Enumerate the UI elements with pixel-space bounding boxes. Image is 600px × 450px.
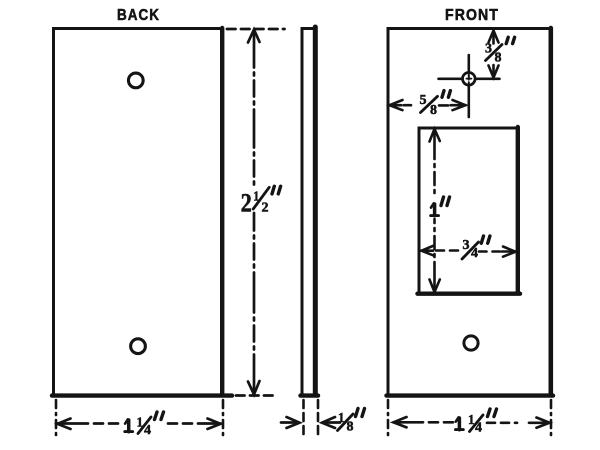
svg-text:FRONT: FRONT — [445, 7, 499, 24]
svg-text:BACK: BACK — [117, 7, 160, 24]
svg-text:8: 8 — [430, 103, 437, 118]
svg-text:2: 2 — [262, 201, 269, 216]
svg-text:5: 5 — [420, 93, 427, 108]
svg-text:2: 2 — [241, 188, 252, 218]
svg-text:8: 8 — [495, 51, 502, 66]
